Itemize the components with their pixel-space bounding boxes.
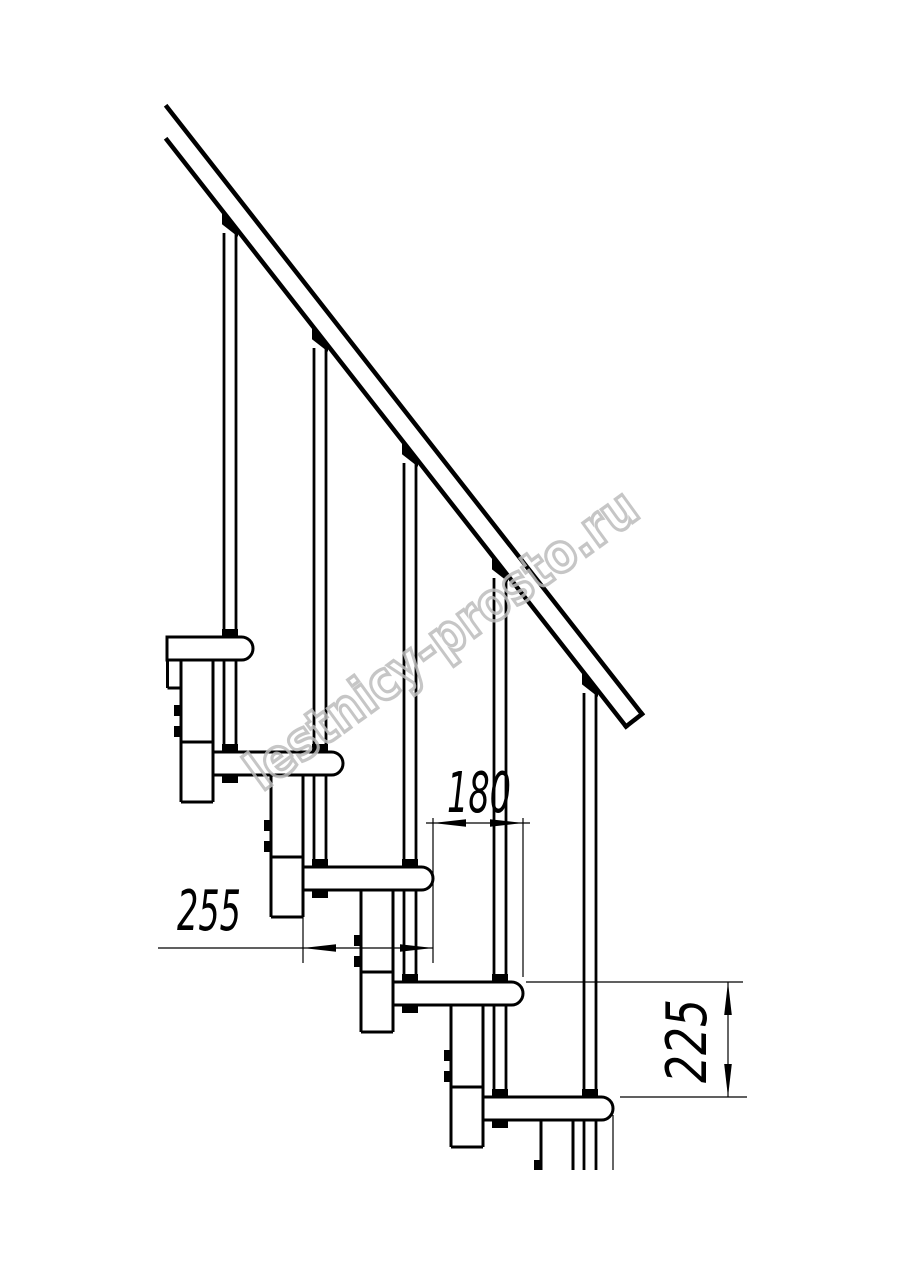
bracket-tab	[534, 1160, 541, 1170]
baluster	[584, 693, 596, 1097]
baluster-rod	[584, 1120, 596, 1170]
arrowhead-up-icon	[724, 982, 732, 1015]
bracket-tab	[264, 841, 271, 852]
arrowhead-down-icon	[724, 1064, 732, 1097]
dimension-value-180: 180	[447, 761, 511, 826]
bolt	[222, 629, 238, 637]
dimension-value-255: 255	[177, 879, 241, 944]
bolt	[492, 974, 508, 982]
nut	[312, 891, 328, 898]
tread	[167, 637, 253, 660]
bolt	[582, 1089, 598, 1097]
nut	[222, 776, 238, 783]
dimension-value-225: 225	[655, 999, 720, 1083]
bolt	[402, 859, 418, 867]
bracket-tab	[354, 956, 361, 967]
bolt	[402, 974, 418, 982]
bracket-tab	[174, 726, 181, 737]
bracket-tab	[354, 935, 361, 946]
baluster-rod	[494, 1005, 506, 1089]
bolt	[492, 1089, 508, 1097]
bracket-tab	[444, 1071, 451, 1082]
baluster-rod	[224, 660, 236, 744]
support-column	[534, 1120, 573, 1170]
nut	[492, 1121, 508, 1128]
baluster-rod	[404, 890, 416, 974]
support-column	[174, 660, 213, 802]
drawing-canvas: 255 180 225 lestnicy-prosto.ru	[0, 0, 914, 1280]
support-column	[444, 1005, 483, 1147]
bracket-tab	[174, 705, 181, 716]
left-cut-edge	[168, 660, 182, 688]
bracket-tab	[264, 820, 271, 831]
arrowhead-left-icon	[303, 944, 336, 952]
baluster-rod	[314, 775, 326, 859]
dimension-step-rise: 225	[526, 982, 747, 1097]
baluster	[224, 233, 236, 637]
watermark: lestnicy-prosto.ru	[234, 477, 650, 803]
nut	[402, 1006, 418, 1013]
support-column	[354, 890, 393, 1032]
dimension-step-going: 180	[426, 761, 530, 977]
bracket-tab	[444, 1050, 451, 1061]
handrail-end-cap	[626, 714, 642, 727]
bolt	[312, 859, 328, 867]
staircase-diagram: 255 180 225 lestnicy-prosto.ru	[0, 0, 914, 1280]
